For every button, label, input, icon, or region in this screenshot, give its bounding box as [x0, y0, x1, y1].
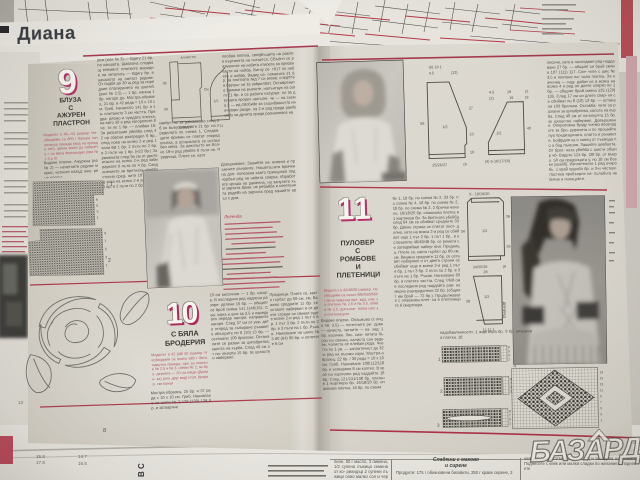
svg-text:28: 28 — [483, 270, 487, 274]
svg-text:11: 11 — [600, 388, 604, 392]
svg-text:9: 9 — [600, 394, 602, 398]
svg-text:(4) 5-16/17/18): (4) 5-16/17/18) — [485, 159, 511, 164]
svg-text:58: 58 — [420, 122, 424, 126]
svg-text:13: 13 — [600, 382, 604, 386]
svg-text:1/2: 1/2 — [442, 125, 447, 129]
svg-text:ДИНИНД: ДИНИНД — [502, 302, 506, 319]
svg-text:1/2: 1/2 — [496, 131, 501, 135]
svg-text:2: 2 — [440, 389, 443, 394]
svg-text:(6) 19 1: (6) 19 1 — [429, 65, 442, 69]
svg-text:5: 5 — [600, 406, 602, 410]
svg-text:19: 19 — [509, 96, 513, 100]
svg-text:1/2: 1/2 — [484, 295, 489, 299]
svg-text:56: 56 — [461, 229, 465, 233]
svg-text:36: 36 — [506, 215, 510, 219]
svg-text:25/26/27: 25/26/27 — [432, 163, 447, 167]
svg-text:10: 10 — [470, 150, 474, 154]
svg-text:15: 15 — [600, 376, 604, 380]
svg-text:1: 1 — [600, 418, 602, 422]
svg-text:19: 19 — [507, 90, 511, 94]
svg-text:3: 3 — [600, 412, 602, 416]
svg-text:9 - 18/19/20: 9 - 18/19/20 — [469, 192, 489, 196]
svg-text:(3: (3 — [525, 90, 529, 94]
svg-text:(9: (9 — [463, 162, 467, 166]
svg-text:4.5: 4.5 — [429, 71, 434, 75]
svg-text:3: 3 — [437, 423, 440, 428]
svg-text:38: 38 — [466, 299, 470, 303]
svg-text:7: 7 — [600, 400, 602, 404]
svg-text:19: 19 — [600, 370, 604, 374]
svg-text:23: 23 — [469, 132, 473, 136]
svg-text:1: 1 — [438, 357, 441, 362]
svg-text:36: 36 — [506, 245, 510, 249]
svg-text:(9: (9 — [525, 95, 529, 99]
svg-text:1/2: 1/2 — [482, 229, 487, 233]
svg-text:(3): (3) — [489, 96, 494, 100]
svg-text:(13): (13) — [451, 71, 459, 75]
svg-text:4: 4 — [513, 363, 516, 368]
svg-text:40: 40 — [527, 126, 531, 130]
svg-text:1: 1 — [508, 357, 510, 361]
svg-text:4.5: 4.5 — [489, 90, 494, 94]
svg-text:27: 27 — [469, 106, 473, 110]
